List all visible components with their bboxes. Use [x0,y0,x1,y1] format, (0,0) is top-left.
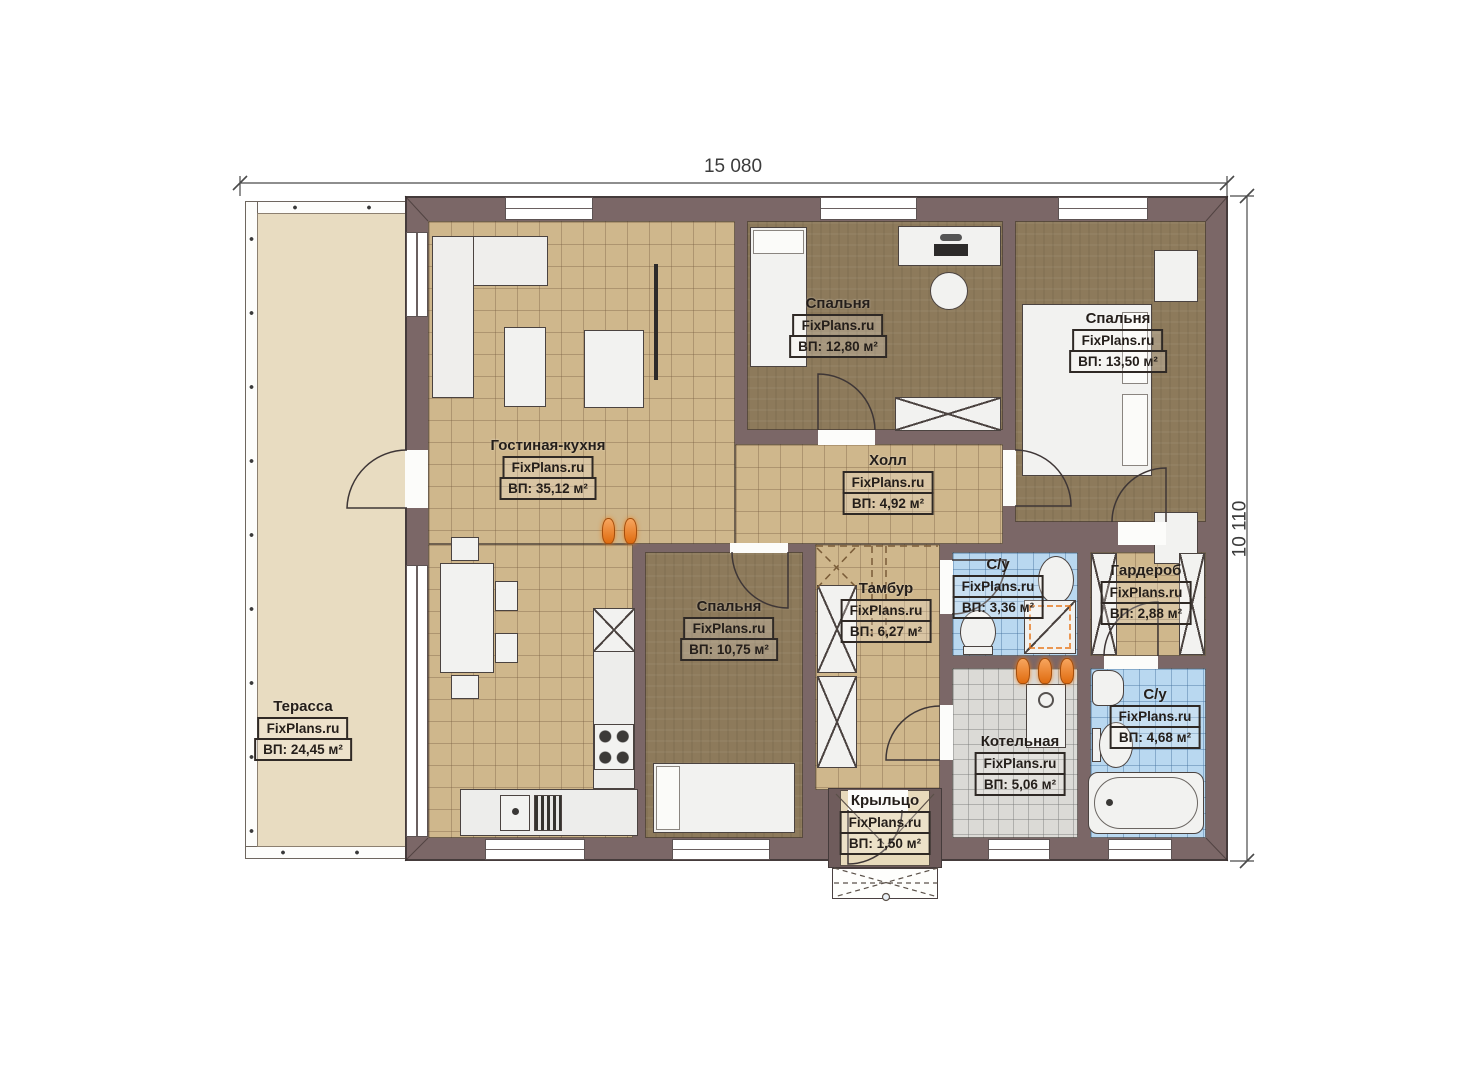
room-area: ВП: 6,27 м² [841,620,931,643]
room-area: ВП: 10,75 м² [680,638,778,661]
washbasin-bathroom1 [1038,556,1074,604]
door-opening-bedroom1 [818,430,875,445]
dimension-height-label: 10 110 [1229,501,1251,558]
window-bathroom2-bottom [1108,839,1172,860]
pillow-bedroom1 [753,230,804,254]
watermark: FixPlans.ru [793,314,884,337]
room-name: Гостиная-кухня [491,437,606,454]
window-boiler-bottom [988,839,1050,860]
radiator-kitchen-2 [624,518,637,544]
door-opening-bedroom3 [730,543,788,553]
room-area: ВП: 35,12 м² [499,477,597,500]
radiator-kitchen-1 [602,518,615,544]
watermark: FixPlans.ru [975,752,1066,775]
room-name: Тамбур [859,580,913,597]
room-name: Гардероб [1111,562,1182,579]
room-name: Холл [869,452,907,469]
dining-table [440,563,494,673]
pillow-bedroom3 [656,766,680,830]
wardrobe-bedroom1 [895,397,1001,431]
room-area: ВП: 4,92 м² [843,492,933,515]
dining-chair-top [451,537,479,561]
terrace-railing-bottom [245,846,406,859]
radiator-boiler-3 [1060,658,1074,684]
dining-chair-right-2 [495,633,518,663]
window-bedroom2-top [1058,197,1148,220]
room-label-boiler: Котельная FixPlans.ru ВП: 5,06 м² [975,733,1066,796]
dimension-width-label: 15 080 [704,156,762,178]
watermark: FixPlans.ru [843,471,934,494]
window-bedroom3-bottom [672,839,770,860]
window-living-left [406,232,428,317]
boiler-gauge [1038,692,1054,708]
watermark: FixPlans.ru [841,599,932,622]
window-living-top [505,197,593,220]
coffee-table [504,327,546,407]
nightstand-bedroom2-a [1154,250,1198,302]
room-name: Спальня [697,598,762,615]
room-name: Спальня [806,295,871,312]
door-opening-bathroom1 [940,560,953,614]
bathtub-drain [1106,799,1113,806]
room-name: Терасса [273,698,332,715]
porch-steps [832,868,938,899]
room-area: ВП: 13,50 м² [1069,350,1167,373]
room-label-porch: Крыльцо FixPlans.ru ВП: 1,50 м² [840,792,931,855]
dimension-line-top [233,176,1234,196]
kitchen-faucet [512,808,519,815]
pillow-bedroom2-b [1122,394,1148,466]
window-kitchen-left [406,565,428,837]
stove-cooktop [594,724,634,770]
room-area: ВП: 1,50 м² [840,832,930,855]
door-opening-boiler [940,705,953,760]
room-label-wardrobe: Гардероб FixPlans.ru ВП: 2,88 м² [1101,562,1192,625]
room-area: ВП: 24,45 м² [254,738,352,761]
room-area: ВП: 4,68 м² [1110,726,1200,749]
room-area: ВП: 12,80 м² [789,335,887,358]
room-label-living-kitchen: Гостиная-кухня FixPlans.ru ВП: 35,12 м² [491,437,606,500]
room-name: Крыльцо [851,792,919,809]
sofa-side-section [432,236,474,398]
watermark: FixPlans.ru [840,811,931,834]
toilet-tank-bathroom1 [963,646,993,655]
room-label-bedroom-2: Спальня FixPlans.ru ВП: 13,50 м² [1069,310,1167,373]
watermark: FixPlans.ru [1073,329,1164,352]
room-label-vestibule: Тамбур FixPlans.ru ВП: 6,27 м² [841,580,932,643]
door-opening-bathroom2 [1104,656,1158,669]
window-kitchen-bottom [485,839,585,860]
door-opening-terrace [405,450,428,508]
kitchen-island [584,330,644,408]
radiator-boiler-2 [1038,658,1052,684]
desk-chair [930,272,968,310]
hall-cabinet-2 [817,676,857,768]
room-name: С/у [1143,686,1166,703]
room-area: ВП: 5,06 м² [975,773,1065,796]
radiator-boiler-1 [1016,658,1030,684]
room-label-bathroom-2: С/у FixPlans.ru ВП: 4,68 м² [1110,686,1201,749]
room-area: ВП: 2,88 м² [1101,602,1191,625]
fridge-cabinet [593,608,635,652]
dining-chair-right-1 [495,581,518,611]
room-area: ВП: 3,36 м² [953,596,1043,619]
room-label-bedroom-1: Спальня FixPlans.ru ВП: 12,80 м² [789,295,887,358]
floor-plan-canvas: 15 080 10 110 Терасса FixPlans.ru ВП: 24… [0,0,1473,1080]
window-bedroom1-top [820,197,917,220]
dining-chair-bottom [451,675,479,699]
watermark: FixPlans.ru [953,575,1044,598]
watermark: FixPlans.ru [1101,581,1192,604]
watermark: FixPlans.ru [684,617,775,640]
watermark: FixPlans.ru [1110,705,1201,728]
laptop [934,244,968,256]
watermark: FixPlans.ru [503,456,594,479]
door-opening-bedroom2 [1003,450,1016,506]
room-name: Котельная [981,733,1060,750]
room-label-terrace: Терасса FixPlans.ru ВП: 24,45 м² [254,698,352,761]
tv-panel [654,264,658,380]
desk-lamp [940,234,962,241]
dish-rack [534,795,562,831]
room-label-bedroom-3: Спальня FixPlans.ru ВП: 10,75 м² [680,598,778,661]
room-name: Спальня [1086,310,1151,327]
room-label-hall: Холл FixPlans.ru ВП: 4,92 м² [843,452,934,515]
room-label-bathroom-1: С/у FixPlans.ru ВП: 3,36 м² [953,556,1044,619]
watermark: FixPlans.ru [258,717,349,740]
door-opening-wardrobe-from-bedroom2 [1118,522,1166,545]
room-name: С/у [986,556,1009,573]
